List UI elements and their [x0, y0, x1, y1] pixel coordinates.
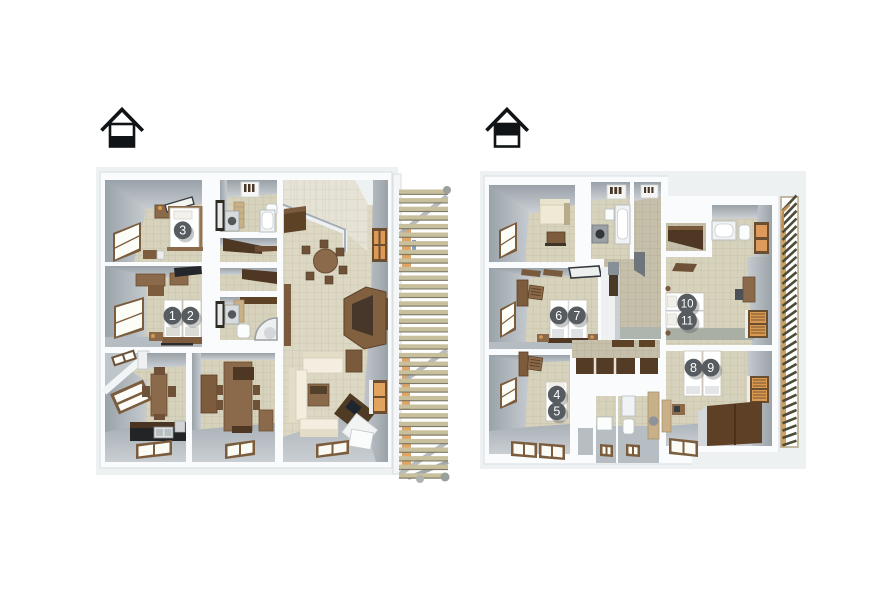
svg-text:7: 7: [573, 309, 580, 323]
svg-text:4: 4: [553, 388, 560, 402]
svg-text:1: 1: [169, 309, 176, 323]
svg-text:6: 6: [555, 309, 562, 323]
svg-text:10: 10: [681, 299, 694, 311]
svg-text:2: 2: [187, 309, 194, 323]
svg-text:9: 9: [707, 361, 714, 375]
svg-text:11: 11: [681, 315, 693, 327]
svg-text:5: 5: [553, 405, 560, 419]
svg-text:8: 8: [690, 361, 697, 375]
svg-text:3: 3: [179, 224, 186, 238]
